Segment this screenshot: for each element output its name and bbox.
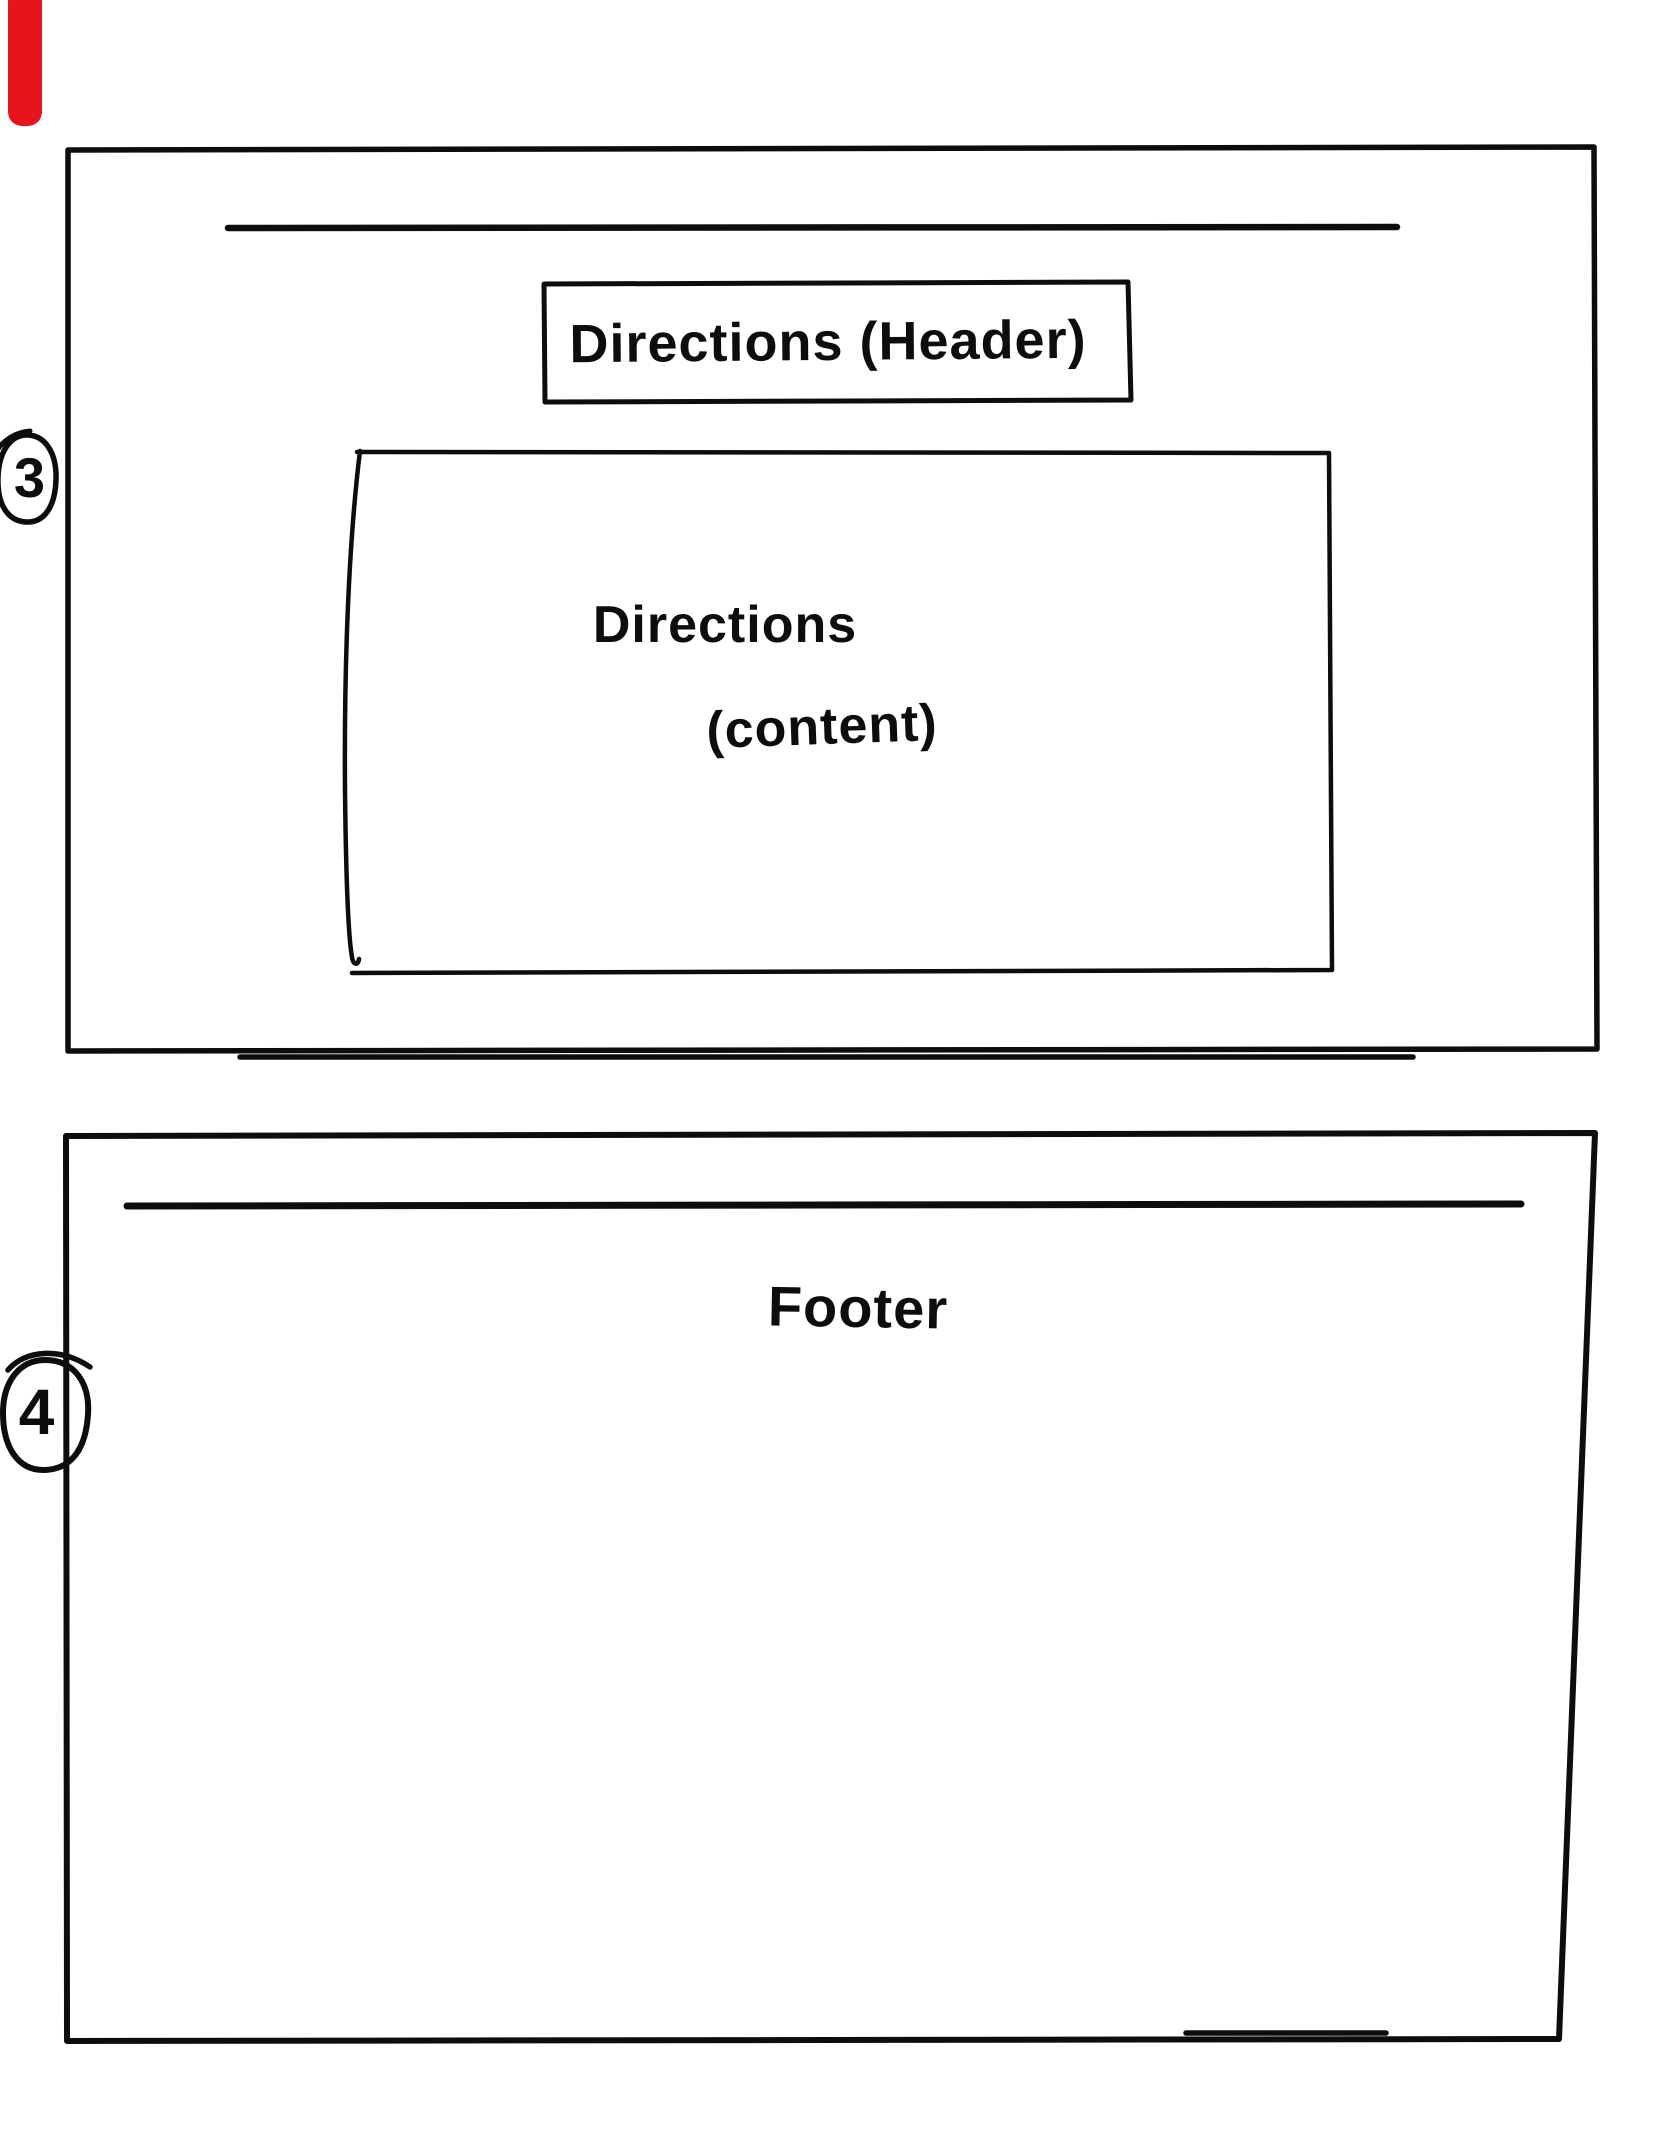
content-label-line2: (content): [705, 697, 938, 757]
slide-4-frame: [66, 1133, 1595, 2041]
slide-3-top-rule: [228, 227, 1397, 228]
header-label: Directions (Header): [569, 313, 1087, 372]
slide-number-4: 4: [19, 1380, 56, 1444]
red-marker: [8, 0, 42, 126]
content-box-left-edge: [345, 451, 360, 964]
slide-4-top-rule: [127, 1204, 1521, 1206]
sketch-page: 3 Directions (Header) Directions (conten…: [0, 0, 1668, 2154]
content-label-line1: Directions: [593, 599, 857, 651]
slide-number-3: 3: [14, 450, 46, 506]
footer-label: Footer: [767, 1278, 948, 1337]
